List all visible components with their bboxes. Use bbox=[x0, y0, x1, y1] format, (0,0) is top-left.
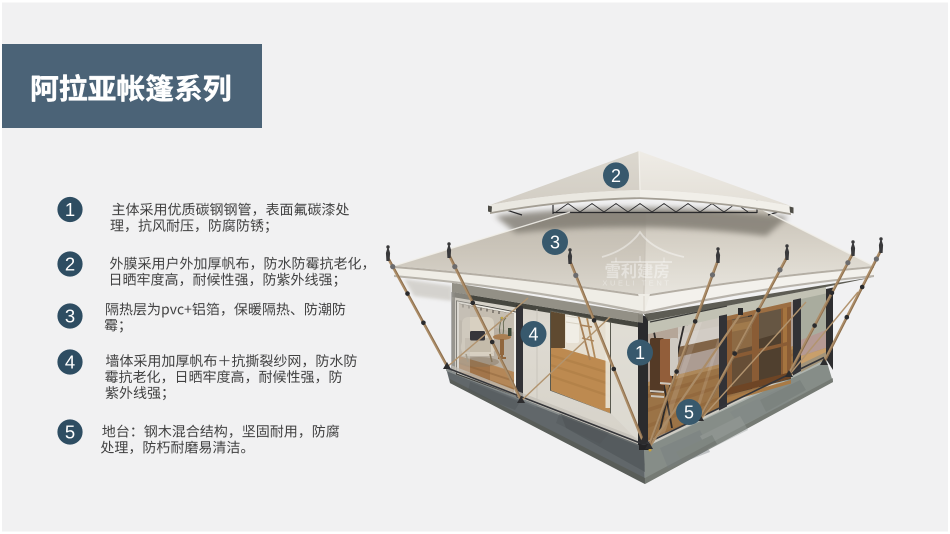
svg-text:3: 3 bbox=[65, 306, 75, 327]
svg-text:1: 1 bbox=[65, 199, 75, 220]
svg-text:4: 4 bbox=[528, 324, 538, 344]
svg-text:2: 2 bbox=[65, 254, 75, 275]
svg-text:1: 1 bbox=[635, 343, 645, 363]
svg-text:2: 2 bbox=[611, 166, 621, 186]
svg-text:XUELI TENT: XUELI TENT bbox=[602, 279, 671, 288]
svg-text:5: 5 bbox=[684, 402, 694, 422]
svg-text:4: 4 bbox=[65, 352, 75, 373]
svg-text:3: 3 bbox=[550, 232, 560, 252]
svg-text:5: 5 bbox=[65, 422, 75, 443]
